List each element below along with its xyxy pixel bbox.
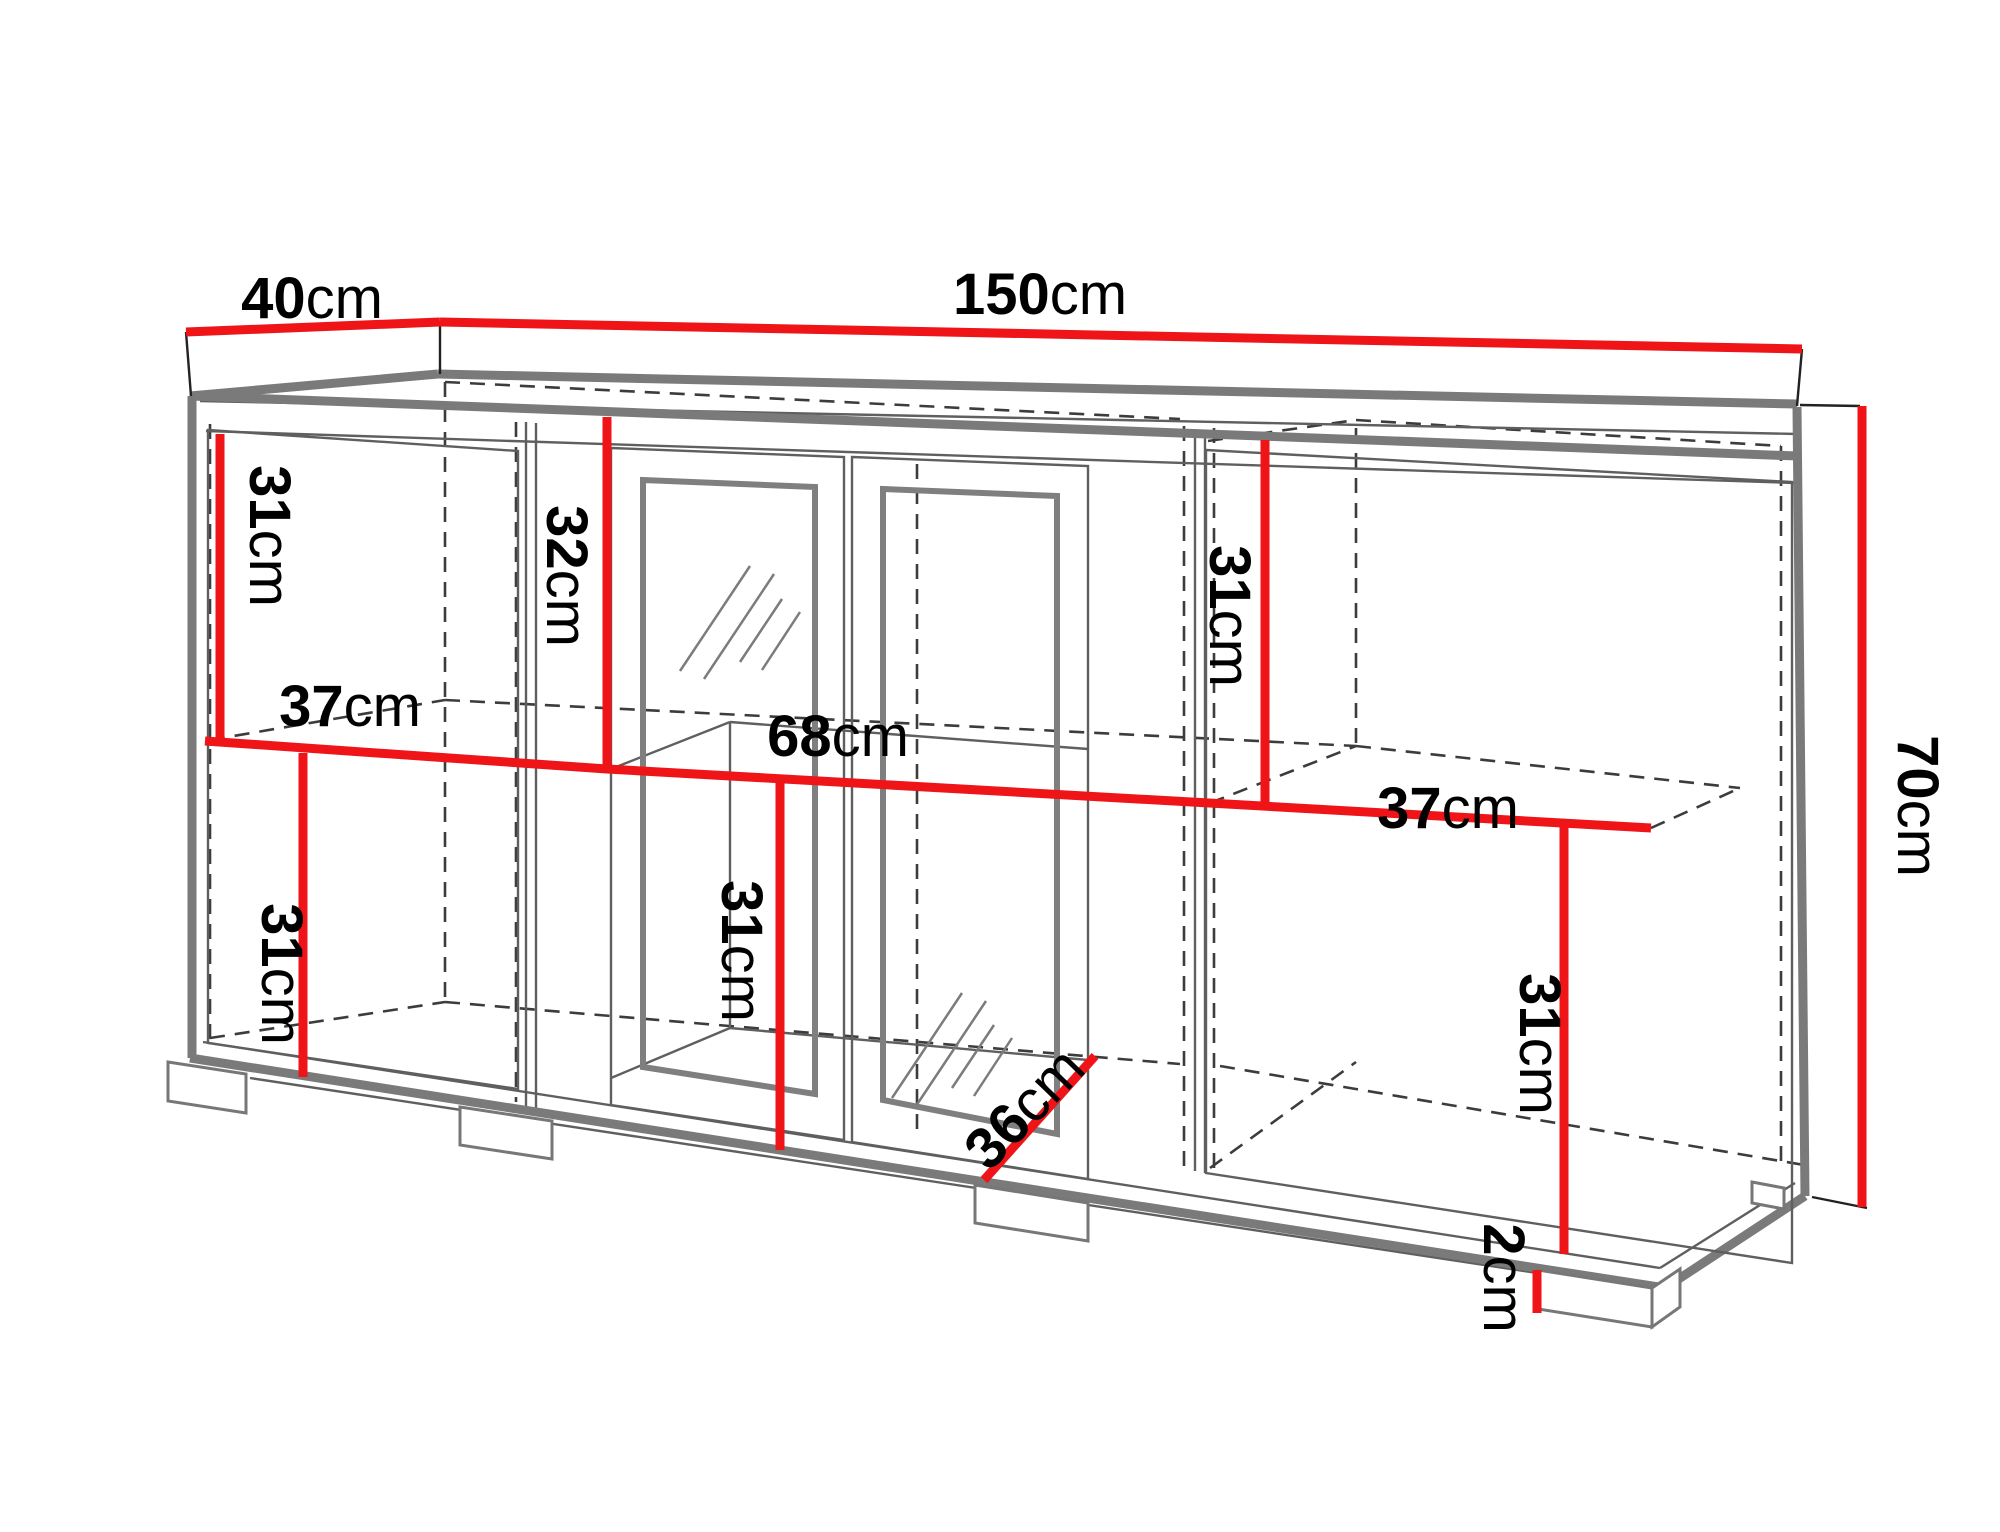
dimension-label-height-right: 70cm (1886, 735, 1951, 877)
cabinet-edge-thick (1797, 407, 1805, 1196)
dimension-h-right-top: 31cm (1198, 440, 1266, 806)
dimension-label-h-glass-top: 32cm (535, 505, 600, 647)
dimension-label-h-center-bottom: 31cm (710, 880, 775, 1022)
cabinet-edge-thick (190, 396, 1797, 456)
hidden-edge-dashed-line (1651, 788, 1740, 828)
dimension-h-right-bottom: 31cm (1508, 822, 1573, 1254)
interior-shelf-line (611, 722, 730, 769)
dimension-extension-tick (1797, 349, 1802, 406)
glass-reflection-mark (680, 566, 750, 671)
dimension-label-shelf-left-37: 37cm (279, 674, 421, 739)
dimension-height-right: 70cm (1862, 406, 1951, 1207)
dimension-h-glass-top: 32cm (535, 417, 608, 769)
dimension-h-center-bottom: 31cm (710, 782, 781, 1150)
cabinet-edge-thin (250, 1078, 1537, 1273)
dimension-shelf-right-37: 37cm (1377, 776, 1519, 841)
cabinet-edge-thick (438, 374, 1797, 404)
dimension-label-shelf-center-68: 68cm (767, 704, 909, 769)
glass-reflection-mark (740, 599, 782, 662)
dimension-label-h-right-top: 31cm (1198, 545, 1263, 687)
cabinet-edge-thick (190, 1058, 1665, 1288)
dimension-label-width-top: 150cm (953, 262, 1127, 327)
dimension-label-shelf-right-37: 37cm (1377, 776, 1519, 841)
dimension-shelf-center-68: 68cm (767, 704, 909, 769)
cabinet-foot (1752, 1182, 1784, 1209)
dimension-foot-height-2: 2cm (1472, 1223, 1538, 1333)
cabinet-foot (168, 1062, 246, 1113)
diagram-canvas: 40cm150cm70cm31cm32cm31cm37cm68cm37cm31c… (40, 16, 2000, 1516)
furniture-dimension-diagram: 40cm150cm70cm31cm32cm31cm37cm68cm37cm31c… (40, 16, 2000, 1516)
hidden-edge-dashed-line (210, 1002, 445, 1038)
hidden-edge-dashed-line (1210, 746, 1356, 803)
glass-reflection-mark (952, 1025, 994, 1088)
dimension-label-foot-height-2: 2cm (1472, 1223, 1537, 1333)
dimension-depth-top: 40cm (186, 266, 440, 332)
dimension-label-h-left-bottom: 31cm (250, 903, 315, 1045)
cabinet-foot (1652, 1269, 1680, 1327)
door-outline (1206, 450, 1792, 1263)
dimension-extension-tick (1800, 405, 1860, 406)
dimension-label-h-right-bottom: 31cm (1508, 973, 1573, 1115)
dimension-h-left-bottom: 31cm (250, 753, 315, 1077)
glass-door-frame (883, 489, 1057, 1134)
cabinet-edge-thick (190, 374, 438, 396)
dimension-extension-tick (186, 332, 191, 396)
dimension-width-top: 150cm (440, 262, 1802, 349)
dimension-label-depth-top: 40cm (241, 266, 383, 331)
dimension-label-h-left-top: 31cm (238, 465, 303, 607)
cabinet-foot (1538, 1270, 1652, 1327)
